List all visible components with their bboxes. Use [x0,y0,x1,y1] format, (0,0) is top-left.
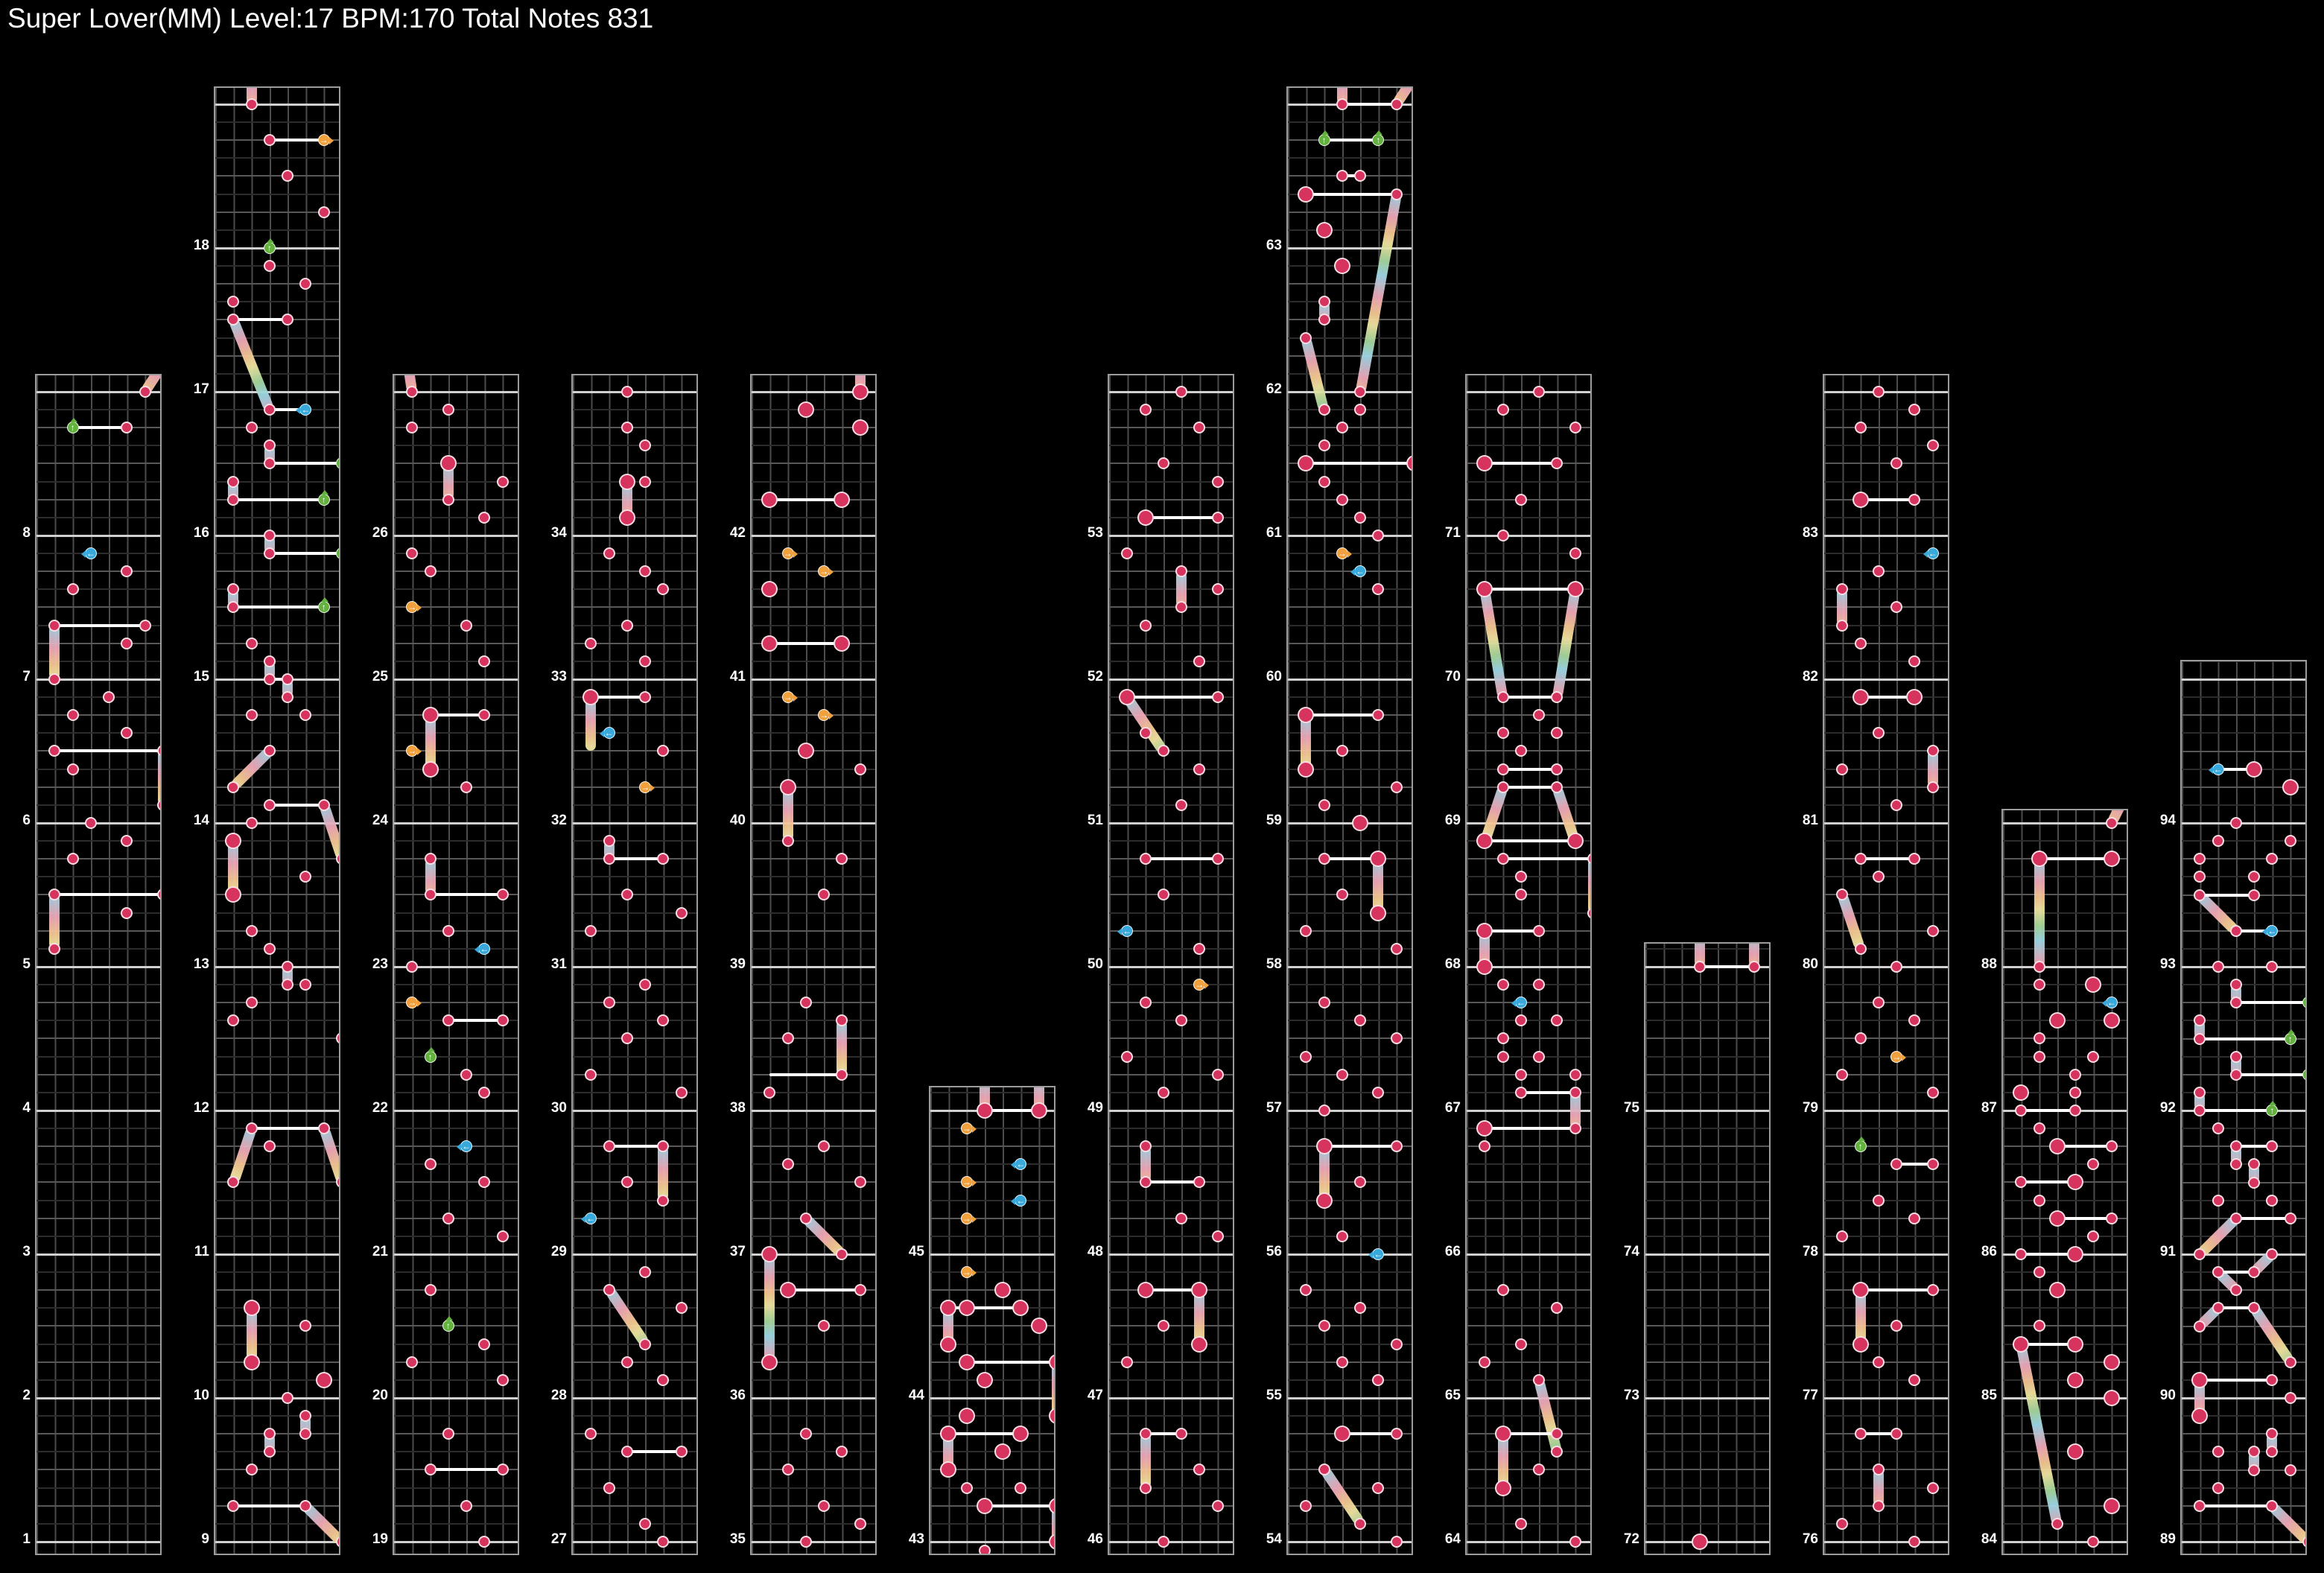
arrow-tip [339,544,340,548]
beat-line [36,984,160,985]
beat-line [394,588,518,590]
beat-line [752,1128,875,1129]
beat-line [394,1451,518,1452]
beat-line [1109,445,1233,446]
beat-line [1288,588,1412,590]
measure-number: 5 [22,956,31,973]
measure-number: 57 [1266,1100,1282,1116]
measure-number: 54 [1266,1531,1282,1548]
note-pink [264,1428,276,1440]
measure-line [394,822,518,824]
measure-line [1467,1253,1590,1256]
measure-line [2003,966,2127,968]
beat-line [1109,1200,1233,1201]
arrow-tip [329,137,334,144]
measure-number: 50 [1088,956,1103,973]
lane-lines [1288,88,1412,1554]
beat-line [1645,1037,1769,1039]
note-pink [442,404,454,416]
note-arrow-right-icon: → [782,691,794,703]
beat-line [394,1145,518,1147]
beat-line [1645,1469,1769,1470]
beat-line [1824,1181,1948,1183]
note-pink [2230,817,2242,829]
measure-line [752,966,875,968]
note-pink [603,1284,615,1296]
measure-line [1288,535,1412,537]
beat-line [1109,1218,1233,1219]
beat-line [394,1415,518,1417]
note-pink [2212,1122,2224,1134]
note-pink [1140,404,1152,416]
measure-grid: ←←↑↑↑↑ [2180,660,2307,1555]
arrow-tip [2262,928,2267,935]
beat-line [752,876,875,877]
note-pink [2051,1518,2063,1530]
note-pink [1748,961,1760,973]
note-pink [1212,1069,1224,1081]
measure-number: 87 [1981,1100,1997,1116]
simultaneous-connector [1146,1180,1200,1183]
measure-grid: ←→← [571,374,698,1555]
hold-bar [2034,859,2045,967]
beat-line [573,1505,696,1507]
note-pink-large [316,1372,332,1388]
measure-number: 7 [22,669,31,685]
note-pink [227,1500,239,1512]
beat-line [394,840,518,842]
note-pink [2212,1302,2224,1314]
note-pink [1391,1338,1403,1350]
measure-number: 35 [730,1531,746,1548]
beat-line [394,912,518,914]
note-pink-large [1316,1192,1333,1209]
arrow-tip [972,1179,977,1186]
chart-column-10: 72737475 [1610,942,1774,1555]
beat-line [1288,1325,1412,1326]
simultaneous-connector [252,1127,324,1130]
measure-number: 53 [1088,525,1103,541]
beat-line [1109,427,1233,428]
beat-line [752,732,875,734]
beat-line [2182,714,2305,716]
beat-line [2003,1379,2127,1381]
measure-number: 27 [551,1531,567,1548]
measure-line [1288,822,1412,824]
beat-line [2182,1433,2305,1434]
beat-line [1288,1469,1412,1470]
beat-line [2003,1271,2127,1273]
note-pink [1873,1195,1885,1207]
measure-line [1824,1397,1948,1399]
beat-line [752,1020,875,1021]
note-pink [676,1446,688,1458]
beat-line [215,1092,339,1093]
simultaneous-connector [769,1073,842,1076]
note-pink [264,799,276,811]
measure-grid: ← [2001,809,2128,1555]
measure-number: 6 [22,813,31,829]
note-pink-large [619,474,635,490]
beat-line [1824,661,1948,662]
measure-line [1824,535,1948,537]
measure-number: 34 [551,525,567,541]
beat-line [1288,1200,1412,1201]
note-pink [1927,1087,1939,1099]
beat-line [394,930,518,932]
beat-line [1467,1307,1590,1309]
note-pink [1927,781,1939,793]
simultaneous-connector [2039,857,2112,860]
measure-line [215,822,339,824]
measure-line [752,1397,875,1399]
note-pink [1569,1069,1581,1081]
beat-line [573,894,696,895]
note-arrow-left-icon: ← [1015,1158,1026,1170]
beat-line [1288,157,1412,159]
beat-line [930,1236,1054,1237]
note-pink [1515,1087,1527,1099]
beat-line [36,499,160,500]
measure-number: 94 [2160,813,2176,829]
note-pink [264,530,276,541]
note-pink [1569,1087,1581,1099]
measure-line [1109,966,1233,968]
beat-line [36,1344,160,1345]
beat-line [1288,1379,1412,1381]
measure-number: 13 [194,956,209,973]
note-pink [1479,1356,1490,1368]
note-arrow-left-icon: ← [603,727,615,739]
arrow-tip [2209,766,2213,774]
note-pink [1855,1032,1867,1044]
measure-number: 39 [730,956,746,973]
beat-line [1824,1056,1948,1058]
note-pink [585,925,597,937]
beat-line [752,553,875,554]
beat-line [36,1325,160,1326]
beat-line [1288,1451,1412,1452]
beat-line [1109,1523,1233,1525]
note-pink [2106,1213,2118,1224]
note-pink [85,817,97,829]
note-pink-large [2104,1354,2120,1370]
measure-line [2182,1541,2305,1543]
simultaneous-connector [1306,714,1378,716]
measure-line [752,535,875,537]
note-pink [2069,1087,2081,1099]
measure-number: 26 [372,525,388,541]
arrow-tip [1375,130,1382,135]
note-pink [585,1069,597,1081]
beat-line [1288,481,1412,483]
arrow-tip [2305,1065,2307,1070]
note-pink [497,1014,509,1026]
note-pink [246,1464,258,1475]
beat-line [215,1289,339,1291]
note-pink [603,997,615,1008]
note-pink [621,422,633,433]
beat-line [1109,750,1233,751]
beat-line [573,1056,696,1058]
beat-line [1824,463,1948,464]
beat-line [215,1307,339,1309]
measure-number: 55 [1266,1388,1282,1404]
beat-line [1467,1325,1590,1326]
beat-line [1824,1415,1948,1417]
note-arrow-up-icon: ↑ [1318,134,1330,146]
note-arrow-left-icon: ← [2212,763,2224,775]
beat-line [1109,912,1233,914]
measure-number: 93 [2160,956,2176,973]
beat-line [2003,1487,2127,1489]
note-pink [2087,1051,2099,1063]
beat-line [1109,625,1233,626]
note-pink-large [798,401,814,418]
measure-line [36,535,160,537]
note-pink [1391,781,1403,793]
beat-line [1645,1433,1769,1434]
beat-line [36,1056,160,1058]
note-pink-large [1852,1282,1869,1298]
note-arrow-right-icon: → [818,709,830,721]
beat-line [215,1415,339,1417]
beat-line [1824,1200,1948,1201]
beat-line [1645,1523,1769,1525]
beat-line [2003,1415,2127,1417]
note-arrow-right-icon: → [782,547,794,559]
beat-line [36,1379,160,1381]
note-pink [425,1158,436,1170]
beat-line [1645,1236,1769,1237]
beat-line [1109,1128,1233,1129]
note-pink [246,709,258,721]
arrow-tip [972,1215,977,1223]
beat-line [1467,750,1590,751]
measure-number: 16 [194,525,209,541]
note-pink [2285,1392,2296,1404]
measure-line [1288,966,1412,968]
simultaneous-connector [1485,1127,1575,1130]
beat-line [1288,912,1412,914]
arrow-tip [1368,1251,1373,1259]
measure-line [36,966,160,968]
beat-line [215,175,339,177]
beat-line [36,1523,160,1525]
measure-number: 43 [909,1531,924,1548]
note-pink [1873,386,1885,398]
note-pink [1391,98,1403,110]
arrow-tip [829,712,834,719]
note-pink [2106,1140,2118,1152]
note-pink-large [1852,689,1869,705]
beat-line [1288,1181,1412,1183]
beat-line [1109,1344,1233,1345]
note-pink [1212,476,1224,488]
note-pink-large [2067,1246,2083,1262]
beat-line [215,661,339,662]
beat-line [1824,876,1948,877]
beat-line [1645,1163,1769,1165]
simultaneous-connector [233,1504,305,1507]
measure-line [1288,391,1412,393]
beat-line [752,912,875,914]
beat-line [1645,1092,1769,1093]
beat-line [36,1074,160,1075]
note-arrow-left-icon: ← [585,1213,597,1224]
beat-line [1467,643,1590,644]
measure-number: 8 [22,525,31,541]
measure-number: 68 [1445,956,1461,973]
beat-line [1824,427,1948,428]
measure-line [573,679,696,681]
beat-line [1109,786,1233,788]
arrow-tip [70,418,77,422]
note-pink [1497,404,1509,416]
beat-line [2182,1128,2305,1129]
beat-line [2003,1037,2127,1039]
note-pink [2033,1122,2045,1134]
note-pink [1354,512,1366,524]
note-pink [1497,530,1509,541]
arrow-tip [793,550,798,558]
arrow-tip [1923,550,1928,558]
note-pink [497,1374,509,1386]
measure-number: 89 [2160,1531,2176,1548]
simultaneous-connector [233,606,323,608]
beat-line [394,769,518,770]
beat-line [215,355,339,357]
beat-line [1824,1002,1948,1003]
beat-line [930,1289,1054,1291]
beat-line [36,1218,160,1219]
note-pink [1497,979,1509,991]
beat-line [36,1307,160,1309]
beat-line [1109,463,1233,464]
note-pink [1927,1158,1939,1170]
beat-line [1109,1451,1233,1452]
note-pink [2248,1177,2260,1189]
measure-number: 9 [201,1531,209,1548]
note-arrow-up-icon: ↑ [1855,1140,1867,1152]
beat-line [215,1325,339,1326]
simultaneous-connector [769,642,842,645]
beat-line [394,1344,518,1345]
note-pink [1212,853,1224,865]
measure-line [36,1253,160,1256]
arrow-tip [972,1269,977,1277]
beat-line [1288,984,1412,985]
note-pink [782,1158,794,1170]
simultaneous-connector [1521,1091,1575,1094]
arrow-tip [1204,982,1209,989]
simultaneous-connector [2021,1109,2075,1112]
note-pink [2266,1195,2278,1207]
measure-number: 71 [1445,525,1461,541]
beat-line [1109,661,1233,662]
beat-line [2182,804,2305,806]
measure-line [1645,1397,1769,1399]
beat-line [1824,1128,1948,1129]
measure-line [1109,391,1233,393]
measure-line [930,1253,1054,1256]
beat-line [752,1002,875,1003]
note-pink [621,620,633,632]
beat-line [2003,1128,2127,1129]
beat-line [1109,409,1233,410]
note-pink [139,620,151,632]
beat-line [1645,1218,1769,1219]
beat-line [573,769,696,770]
simultaneous-connector [1503,696,1558,699]
simultaneous-connector [609,857,664,860]
note-pink-large [2049,1210,2066,1227]
note-pink [603,547,615,559]
note-pink [782,1464,794,1475]
note-arrow-up-icon: ↑ [318,494,330,506]
beat-line [1288,804,1412,806]
beat-line [2182,1344,2305,1345]
note-pink [425,853,436,865]
beat-line [1467,661,1590,662]
measure-line [2003,1541,2127,1543]
beat-line [1288,661,1412,662]
note-pink-large [244,1300,260,1316]
beat-line [1288,1002,1412,1003]
note-pink [2230,1051,2242,1063]
beat-line [2182,696,2305,698]
note-pink [1890,799,1902,811]
note-arrow-up-icon: ↑ [425,1051,436,1063]
note-arrow-left-icon: ← [1372,1248,1384,1260]
measure-number: 11 [194,1244,209,1260]
measure-number: 83 [1803,525,1818,541]
measure-line [1109,822,1233,824]
note-pink [67,853,79,865]
note-pink [442,494,454,506]
measure-line [752,679,875,681]
measure-number: 66 [1445,1244,1461,1260]
note-pink-large [1495,1480,1511,1496]
beat-line [215,1200,339,1201]
beat-line [752,1236,875,1237]
measure-line [1824,1541,1948,1543]
simultaneous-connector [54,624,145,627]
measure-line [1824,822,1948,824]
beat-line [573,606,696,608]
beat-line [930,1163,1054,1165]
chart-column-1: 12345678↑← [1,374,165,1555]
beat-line [752,696,875,698]
note-pink [1873,565,1885,577]
beat-line [1109,1379,1233,1381]
measure-line [573,535,696,537]
beat-line [215,427,339,428]
beat-line [2182,948,2305,950]
note-pink [246,98,258,110]
note-pink [1873,997,1885,1008]
beat-line [394,1271,518,1273]
beat-line [394,1092,518,1093]
beat-line [394,643,518,644]
note-pink [1927,1482,1939,1494]
beat-line [2003,1163,2127,1165]
hold-bar [1140,1434,1151,1487]
measure-line [752,1110,875,1112]
note-pink-large [2067,1372,2083,1388]
beat-line [394,409,518,410]
note-pink [282,673,293,685]
